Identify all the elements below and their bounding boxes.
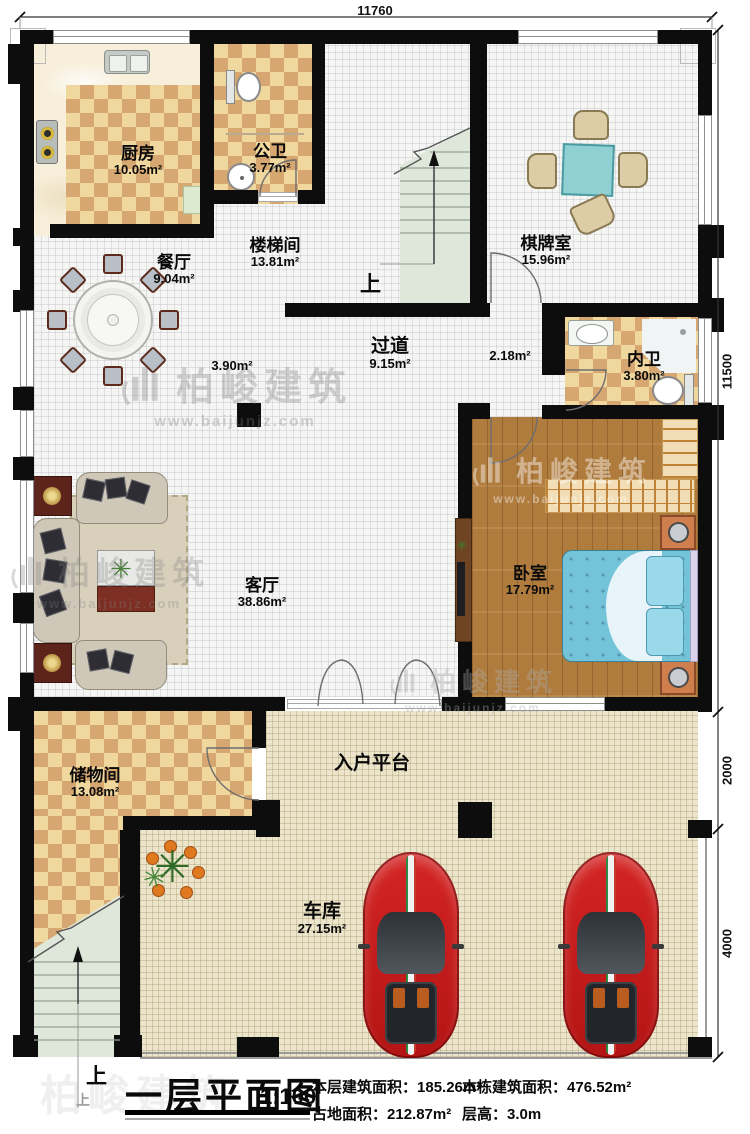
floor-plan-canvas: ✳ ✳ ✳ ✳: [0, 0, 750, 1134]
info-floor-area: 本层建筑面积：185.26m²: [312, 1076, 481, 1097]
room-label-living: 客厅 38.86m²: [238, 576, 286, 610]
entry-stairs-up-label-faint: 上: [76, 1090, 90, 1110]
info-building-area: 本栋建筑面积：476.52m²: [462, 1076, 631, 1097]
room-label-kitchen: 厨房 10.05m²: [114, 144, 162, 178]
stairwell-steps: [380, 128, 470, 264]
room-label-storage: 储物间 13.08m²: [70, 766, 121, 800]
room-label-ensuite-bath: 内卫 3.80m²: [623, 350, 664, 384]
corridor-east-area: 2.18m²: [489, 348, 530, 363]
entry-stairs-up-label: 上: [86, 1060, 107, 1090]
info-land-area: 占地面积：212.87m²: [312, 1103, 451, 1124]
title-rule-thick: [125, 1110, 310, 1115]
room-label-dining: 餐厅 9.04m²: [153, 253, 194, 287]
room-label-garage: 车库 27.15m²: [298, 901, 346, 937]
stairs-up-label: 上: [360, 268, 381, 298]
room-label-entry-platform: 入户平台: [334, 753, 410, 774]
room-label-chess-room: 棋牌室 15.96m²: [521, 234, 572, 268]
room-label-stairwell: 楼梯间 13.81m²: [250, 236, 301, 270]
plan-scale: 1:100: [260, 1084, 316, 1110]
room-label-corridor: 过道 9.15m²: [369, 336, 410, 372]
room-label-public-bath: 公卫 3.77m²: [249, 142, 290, 176]
plan-linework-layer: [0, 0, 750, 1134]
room-label-bedroom: 卧室 17.79m²: [506, 564, 554, 598]
corridor-west-area: 3.90m²: [211, 358, 252, 373]
exterior-steps: [28, 896, 124, 1108]
title-rule-thin: [125, 1118, 310, 1120]
info-floor-height: 层高：3.0m: [462, 1103, 541, 1124]
